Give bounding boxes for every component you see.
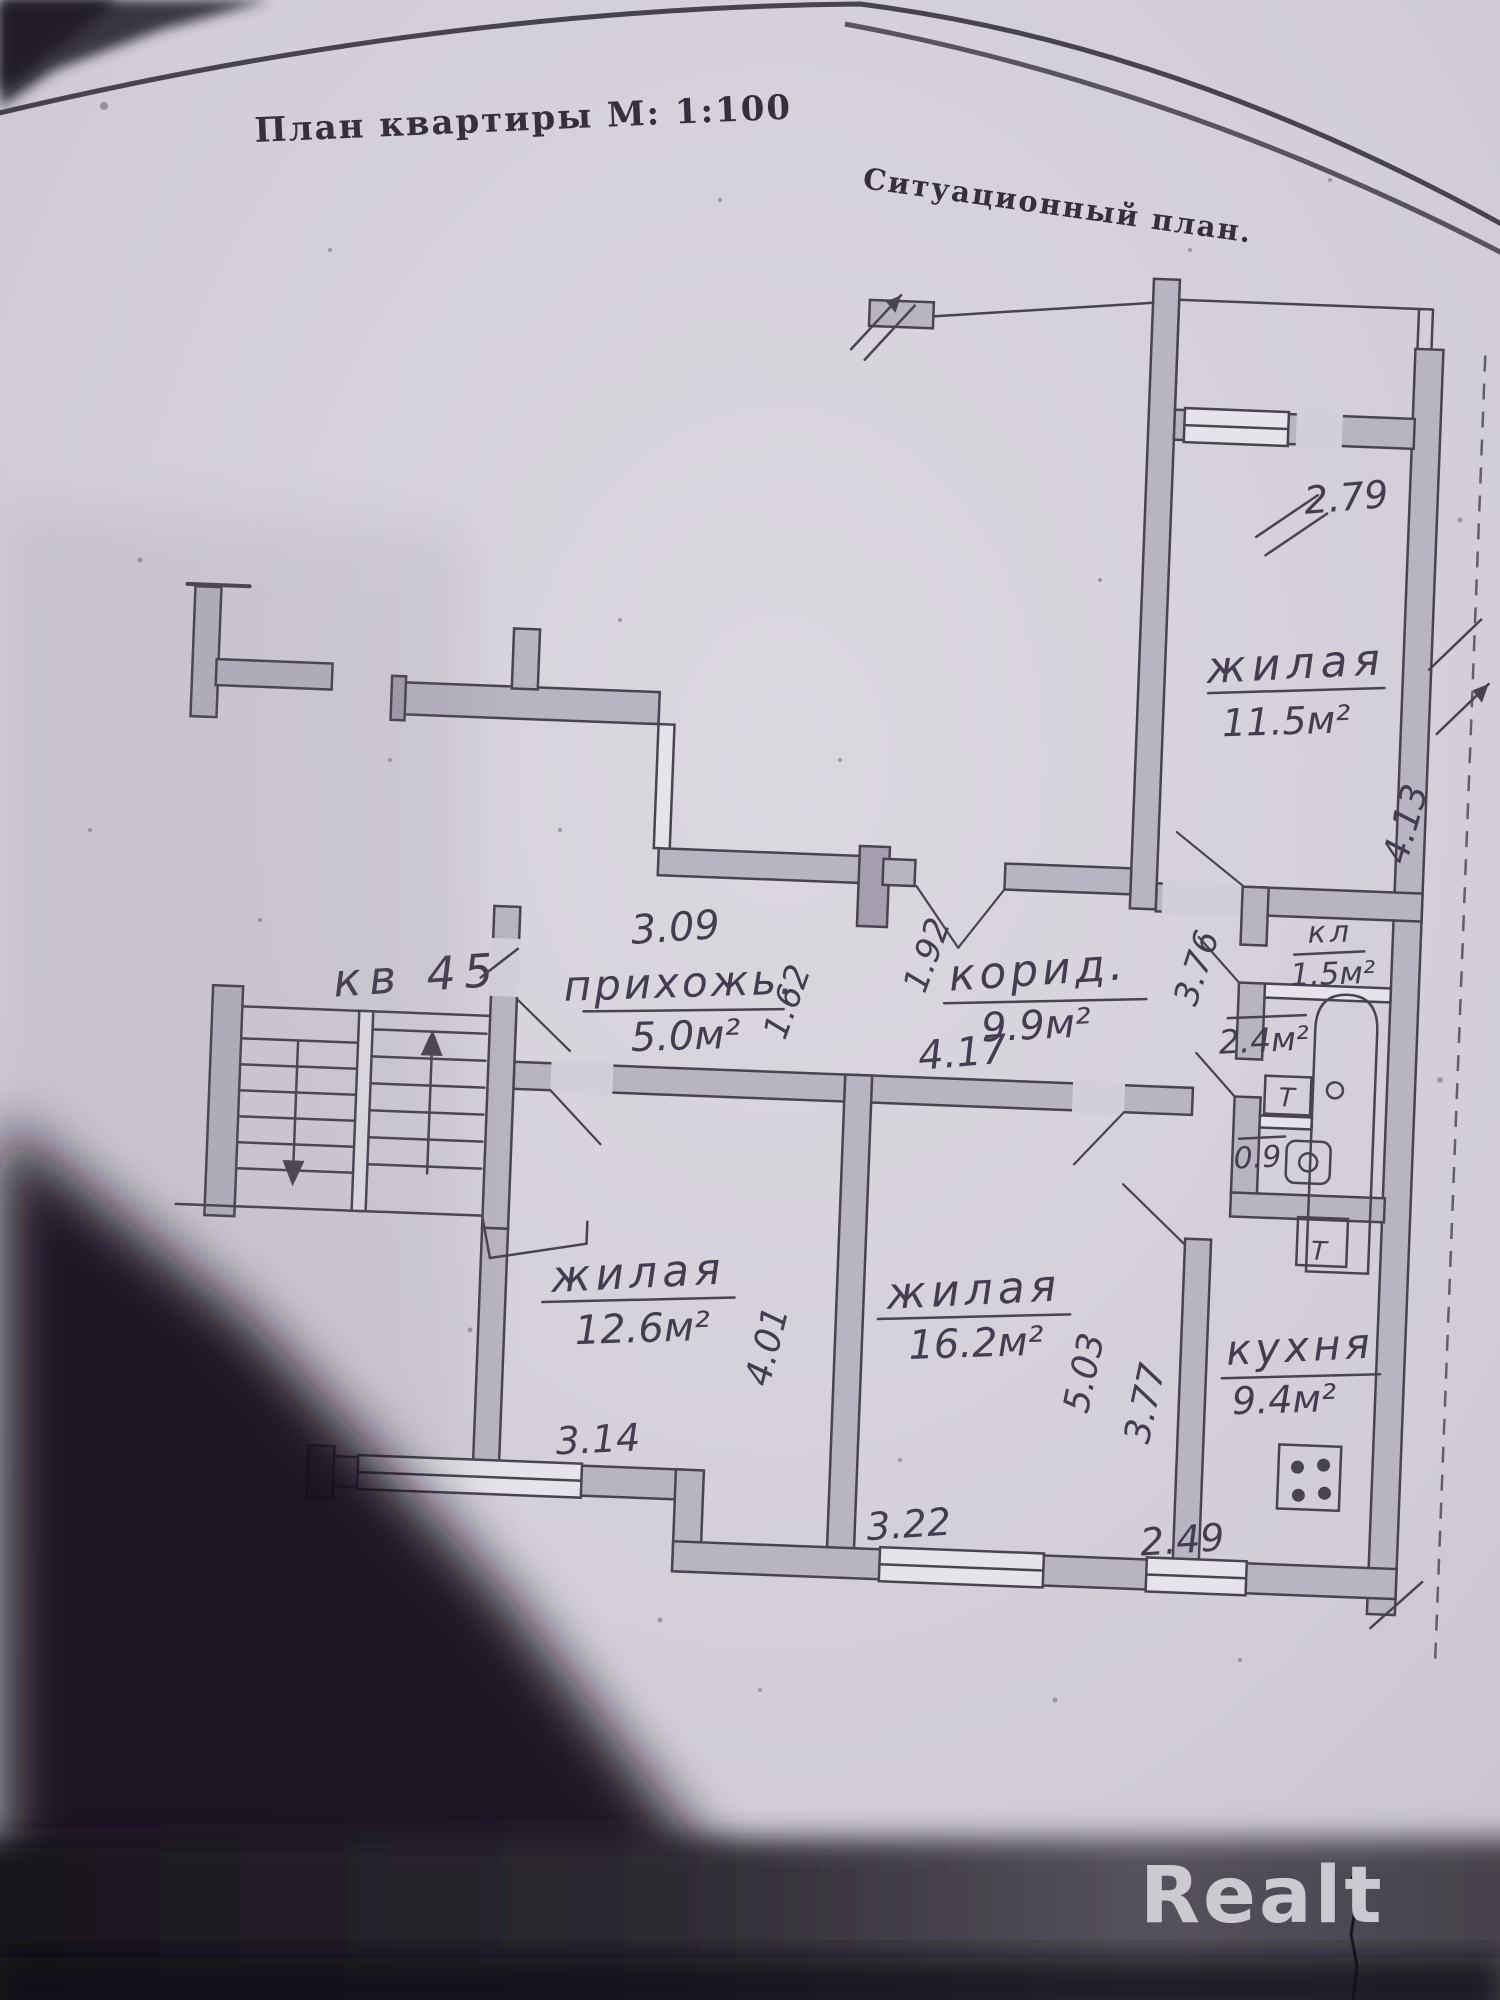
- room-area-bathroom: 2.4м²: [1218, 1018, 1310, 1061]
- room-area-living-12-6: 12.6м²: [574, 1304, 711, 1354]
- room-area-living-16-2: 16.2м²: [908, 1319, 1045, 1369]
- living11-door-opening: [1162, 881, 1247, 918]
- neighbour-top-wall: [869, 300, 934, 328]
- living16-door-opening: [1072, 1080, 1125, 1115]
- room-label-hallway: прихожь.: [563, 955, 796, 1011]
- dim-hall-width: 3.09: [629, 902, 721, 954]
- wall-connector: [654, 724, 675, 849]
- balcony-door-opening: [1296, 410, 1343, 450]
- room-area-closet: 1.5м²: [1290, 955, 1376, 994]
- corridor-top-wall-b: [1004, 864, 1131, 895]
- dim-balcony-width: 2.79: [1302, 472, 1390, 523]
- neighbour-pillar: [512, 628, 540, 689]
- room-label-living-11-5: жилая: [1204, 634, 1387, 694]
- realt-watermark: Realt: [1140, 1851, 1385, 1941]
- photographed-floorplan-page: План квартиры М: 1:100 Ситуационный план…: [0, 0, 1500, 2000]
- room-area-hallway: 5.0м²: [630, 1012, 741, 1061]
- room-label-living-12-6: жилая: [549, 1244, 727, 1304]
- floorplan-canvas: План квартиры М: 1:100 Ситуационный план…: [0, 0, 1500, 2000]
- room-label-living-16-2: жилая: [884, 1260, 1062, 1320]
- dim-corridor-length: 4.17: [916, 1026, 1009, 1079]
- bath-wc-divider: [1259, 1115, 1311, 1129]
- room-label-closet: кл: [1307, 914, 1353, 950]
- corridor-top-wall-a: [883, 859, 916, 886]
- dim-room12-width: 3.14: [555, 1415, 642, 1463]
- room-area-living-11-5: 11.5м²: [1221, 697, 1351, 745]
- room-area-kitchen: 9.4м²: [1231, 1376, 1337, 1423]
- room-label-kitchen: кухня: [1225, 1319, 1375, 1375]
- living12-door-opening: [550, 1060, 613, 1095]
- dim-room16-width: 3.22: [865, 1500, 952, 1550]
- room-area-wc: 0.9: [1233, 1139, 1282, 1176]
- dim-kitchen-width: 2.49: [1139, 1515, 1226, 1565]
- sanblock-wall-1: [1240, 887, 1268, 946]
